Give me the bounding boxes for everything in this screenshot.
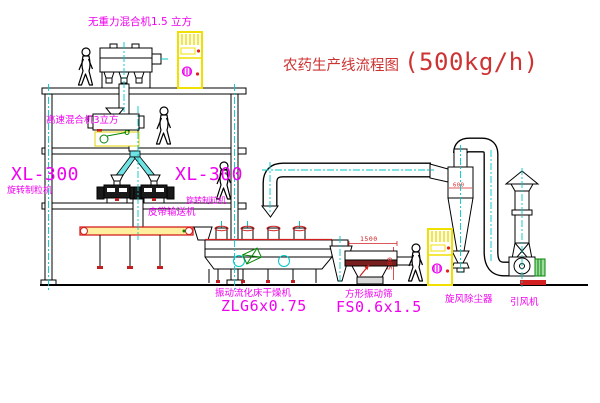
drawing-title: 农药生产线流程图 (500kg/h) xyxy=(283,48,539,76)
exhaust-duct xyxy=(262,170,431,217)
belt-conveyor-label: 皮带输送机 xyxy=(148,206,196,218)
worker-figure-roof xyxy=(79,48,93,85)
y-chute xyxy=(114,151,157,178)
sieve-length-dimension: 1500 xyxy=(360,235,378,243)
cyclone-label: 旋风除尘器 xyxy=(445,293,493,305)
granulator-right-model-label: XL-300 xyxy=(175,164,243,185)
cad-process-flow-screen: 无重力混合机1.5 立方 农药生产线流程图 (500kg/h) 高速混合机3立方… xyxy=(0,0,600,403)
gravity-free-mixer xyxy=(100,44,168,114)
vibrating-sieve xyxy=(345,241,419,284)
drawing-title-cn: 农药生产线流程图 xyxy=(283,57,399,74)
granulator-left-name-label: 旋转制粒机 xyxy=(7,184,52,196)
dryer-model-label: ZLG6x0.75 xyxy=(221,297,307,315)
induced-draft-fan xyxy=(509,257,546,285)
gravity-free-mixer-label: 无重力混合机1.5 立方 xyxy=(88,15,192,28)
granulator-left xyxy=(97,175,137,203)
sieve-height-dimension: 500 xyxy=(386,257,394,270)
worker-figure-floor2 xyxy=(157,107,171,144)
granulator-left-model-label: XL-300 xyxy=(11,164,79,185)
process-flow-drawing: 无重力混合机1.5 立方 农药生产线流程图 (500kg/h) 高速混合机3立方… xyxy=(0,0,600,403)
fluid-bed-dryer xyxy=(194,221,332,283)
worker-figure-ground xyxy=(409,244,423,281)
high-speed-mixer-label: 高速混合机3立方 xyxy=(46,114,119,126)
fan-label: 引风机 xyxy=(510,296,539,308)
cyclone-width-dimension: 600 xyxy=(453,183,464,189)
control-cabinet-top xyxy=(178,32,202,88)
control-cabinet-right xyxy=(428,229,452,285)
sieve-model-label: FS0.6x1.5 xyxy=(336,298,422,316)
belt-conveyor xyxy=(80,227,193,269)
granulator-right-name-label: 旋转制粒机 xyxy=(186,195,226,205)
drawing-title-capacity: (500kg/h) xyxy=(404,48,539,76)
